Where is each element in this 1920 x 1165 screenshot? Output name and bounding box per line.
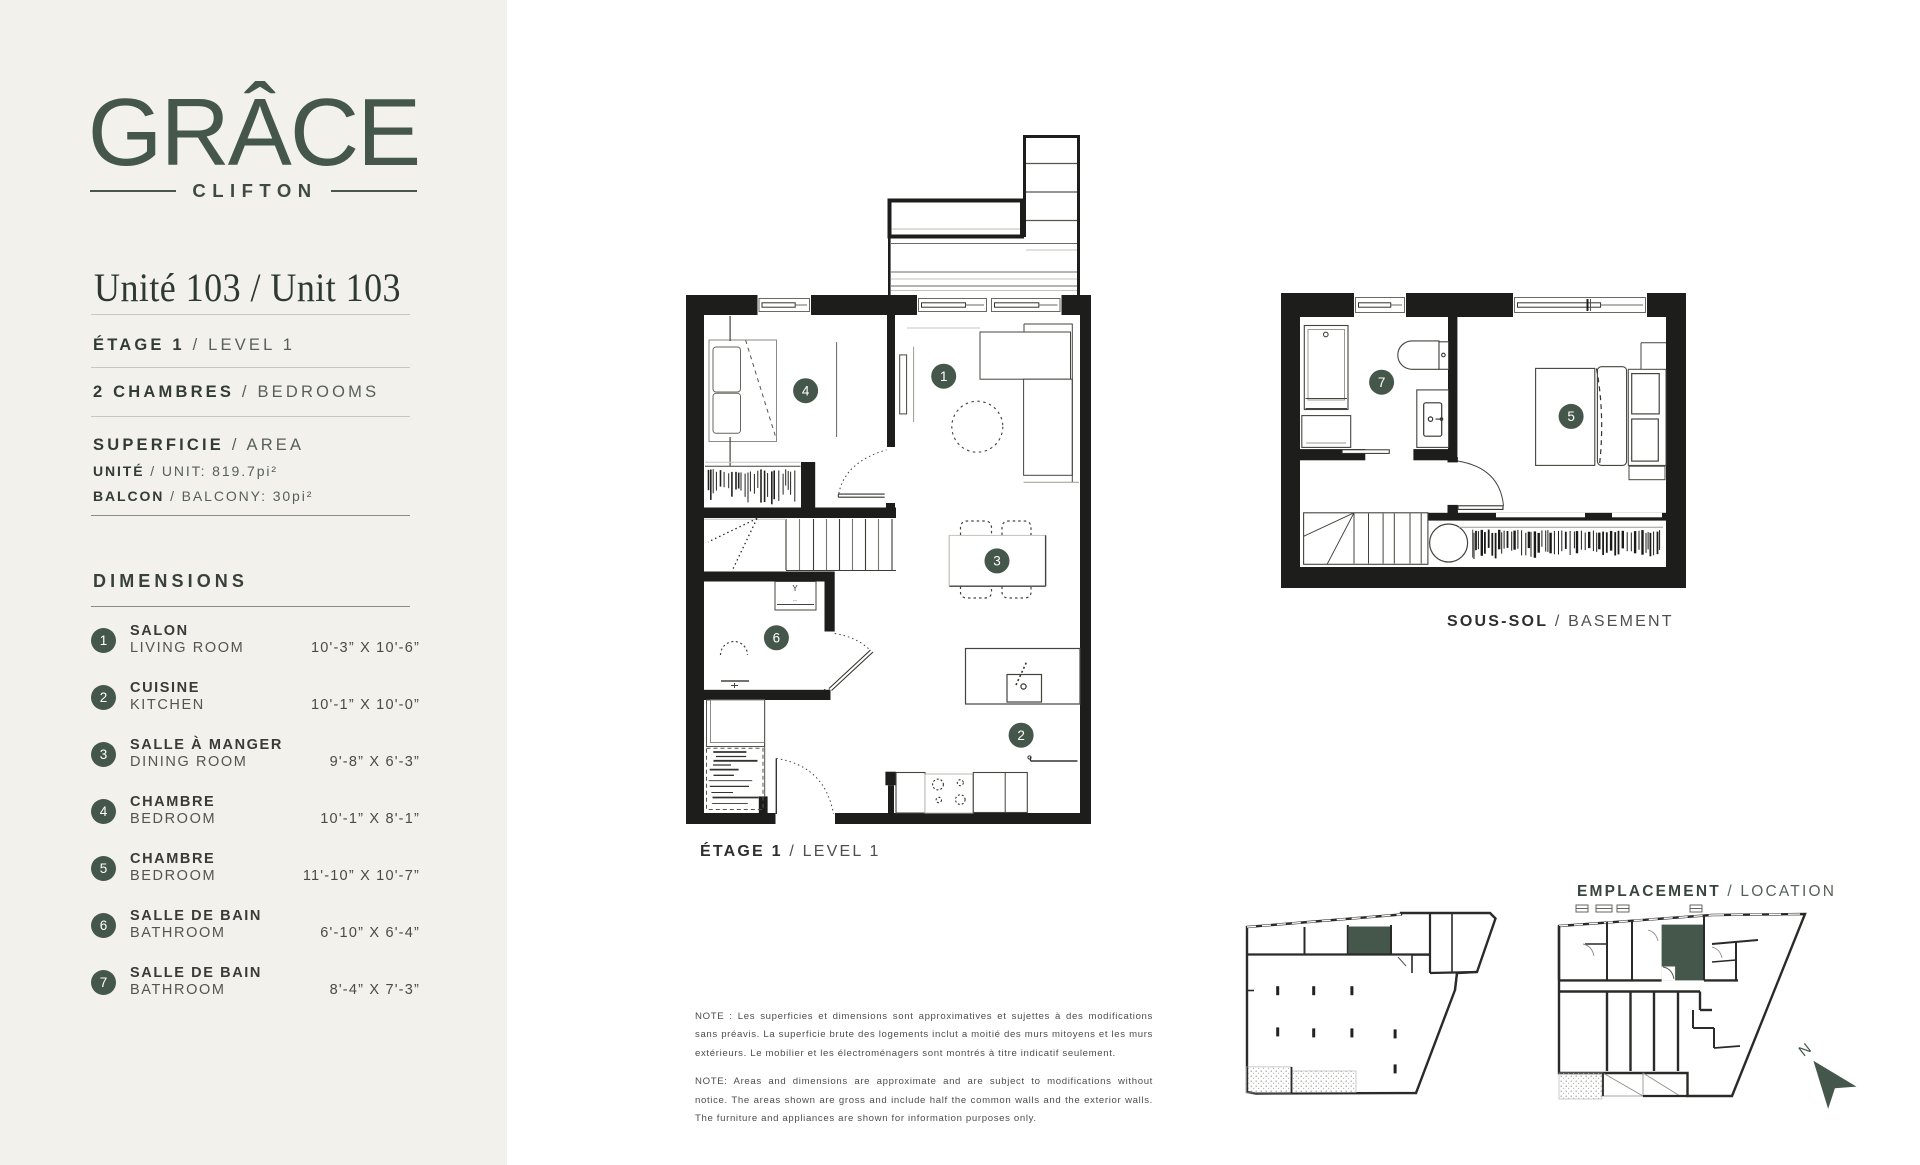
svg-text:3: 3 [993,554,1001,569]
svg-text:2: 2 [1017,728,1025,743]
svg-text:7: 7 [1378,375,1386,390]
svg-text:1: 1 [940,369,948,384]
svg-text:N: N [1796,1040,1815,1060]
svg-text:6: 6 [773,631,781,646]
svg-text:5: 5 [1567,409,1575,424]
svg-text:4: 4 [802,384,810,399]
svg-text:..: .. [793,596,797,603]
svg-text:Y: Y [792,584,798,593]
